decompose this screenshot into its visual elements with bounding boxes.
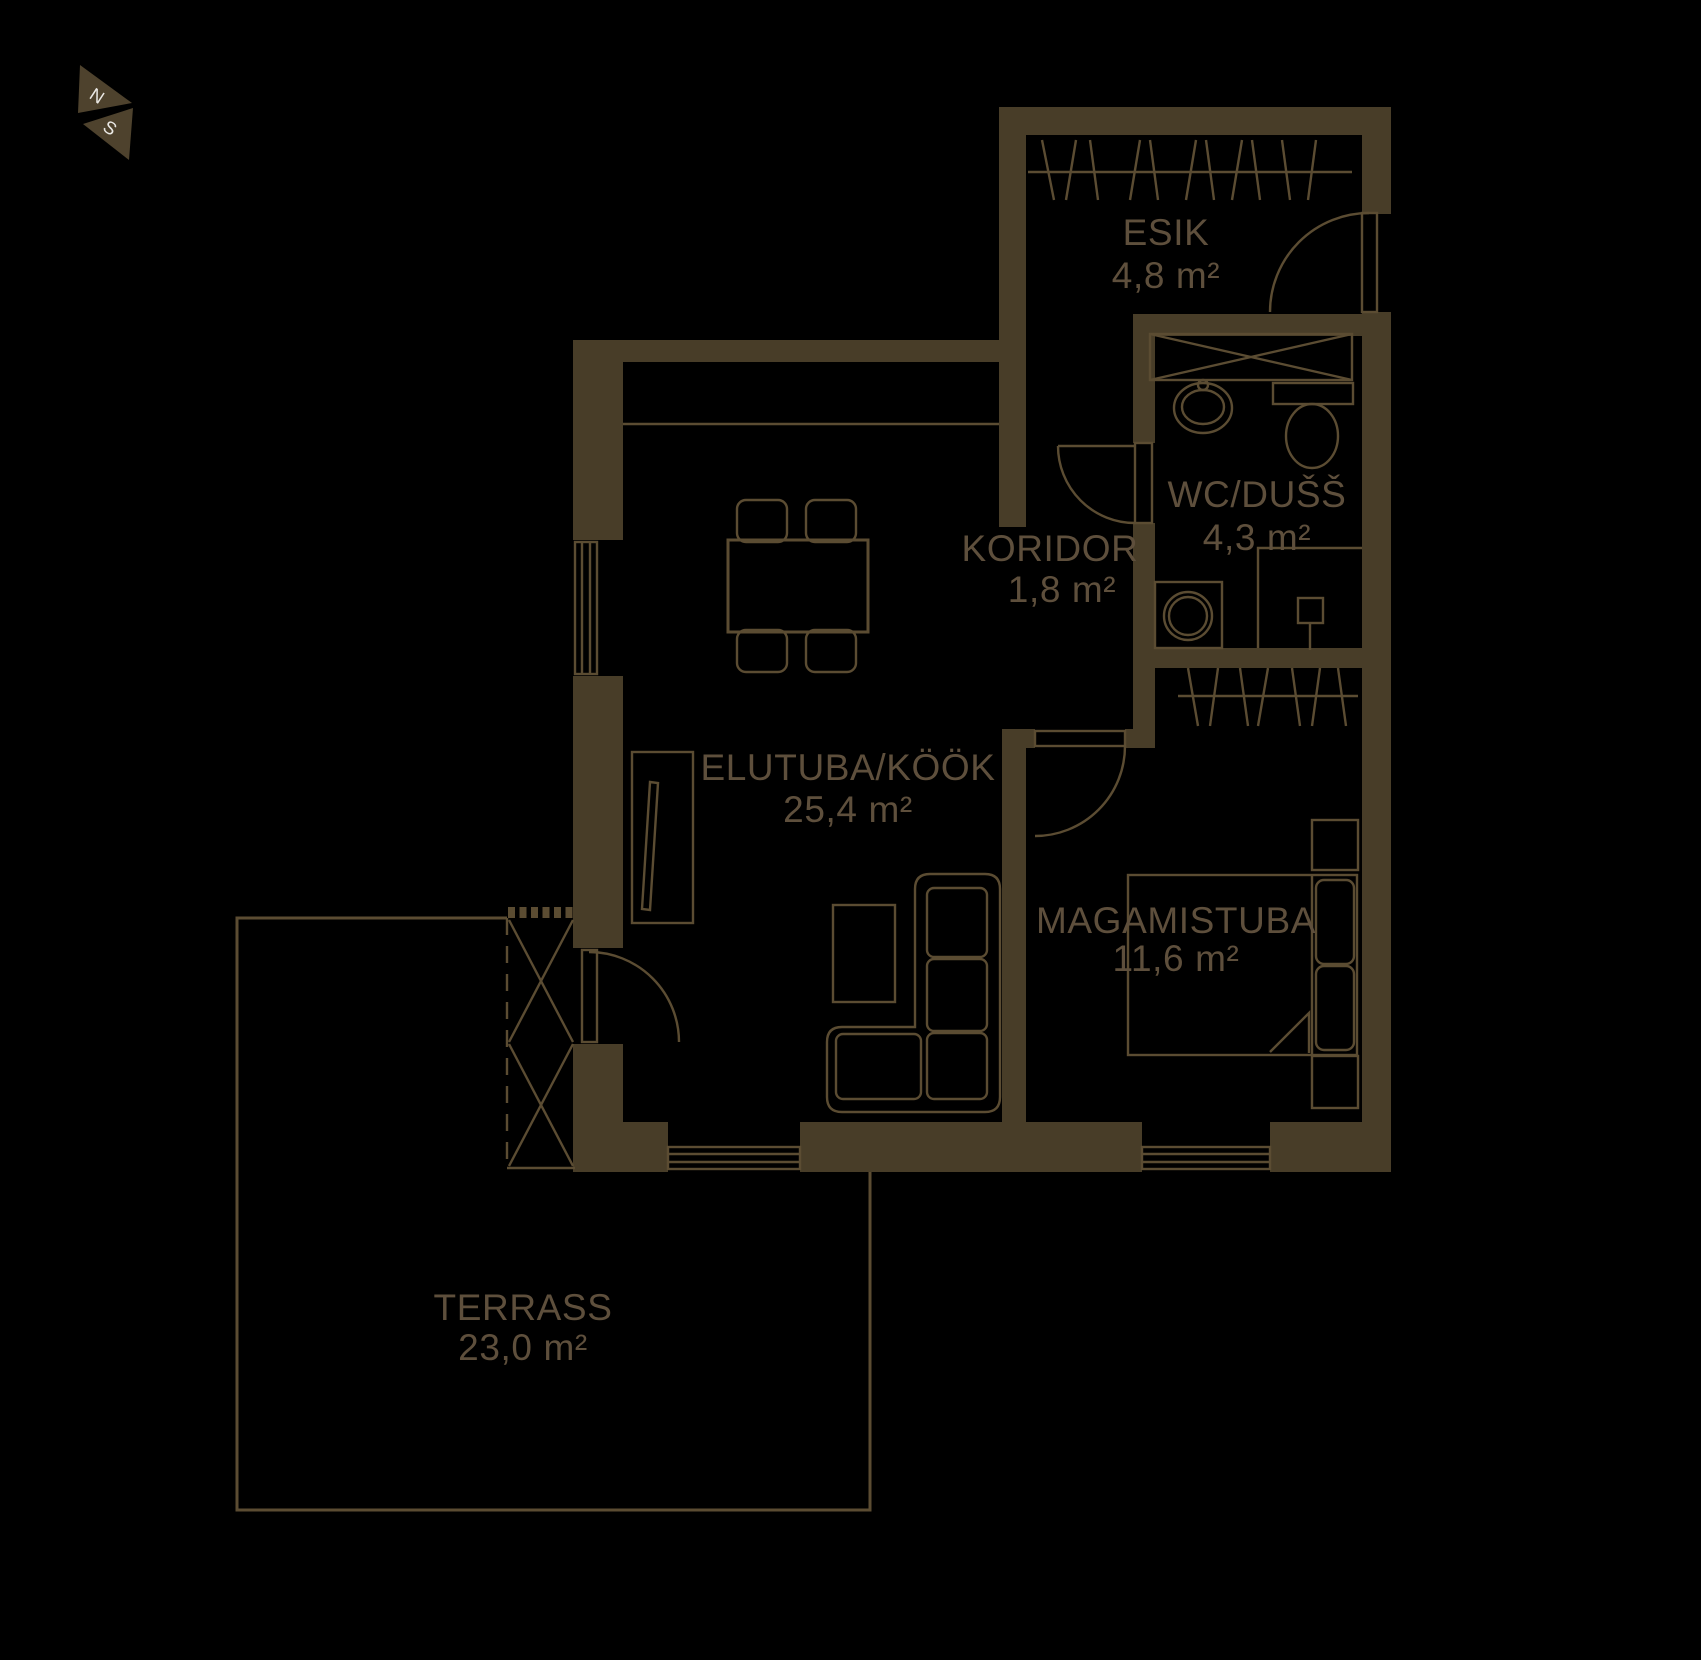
bedroom-closet-hatch (1178, 668, 1358, 726)
wc-door-swing-arc (1058, 446, 1135, 523)
tv-stand (632, 752, 693, 923)
wall-right-above-entry (1362, 107, 1391, 214)
dining-chair (806, 630, 856, 672)
ventilation-cabinet (1150, 334, 1352, 380)
entry-door-leaf (1362, 213, 1377, 312)
windows (575, 542, 1270, 1169)
shower-drain (1298, 598, 1323, 623)
pillow (1316, 880, 1354, 964)
dining-chair (806, 500, 856, 542)
room-label-magamistuba: MAGAMISTUBA (1036, 900, 1316, 941)
balcony-door-swing-arc (589, 952, 679, 1042)
tv-cabinet (632, 752, 693, 923)
wall-wc-left-upper (1133, 336, 1155, 443)
window-living-bottom (668, 1147, 800, 1169)
sofa-cushion (927, 1033, 987, 1099)
balcony-door-leaf (582, 950, 597, 1042)
sofa-cushion (836, 1034, 921, 1099)
toilet-bowl (1286, 404, 1338, 468)
blanket-fold (1270, 1013, 1309, 1053)
faucet (1198, 380, 1208, 390)
shower (1258, 548, 1362, 650)
room-area-wc-duss: 4,3 m² (1203, 517, 1311, 558)
wall-living-top (573, 340, 1026, 362)
room-area-terrass: 23,0 m² (458, 1327, 588, 1368)
wall-esik-wc-divider (1133, 314, 1363, 336)
room-label-koridor: KORIDOR (962, 528, 1139, 569)
nightstand (1312, 1056, 1358, 1108)
toilet-tank (1273, 383, 1353, 404)
dining-chair (737, 500, 787, 542)
wall-right-main (1362, 312, 1391, 1172)
corner-sofa-outline (827, 874, 1000, 1112)
dining-chair (737, 630, 787, 672)
room-area-magamistuba: 11,6 m² (1113, 938, 1240, 979)
wc-door-frame (1135, 443, 1152, 523)
compass-rose: N S (78, 65, 133, 160)
wall-bottom-center (800, 1122, 1142, 1172)
wall-bottom-right (1270, 1122, 1391, 1172)
room-label-elutuba: ELUTUBA/KÖÖK (700, 747, 995, 788)
room-labels: ESIK 4,8 m² WC/DUŠŠ 4,3 m² KORIDOR 1,8 m… (434, 212, 1347, 1368)
balcony-door (582, 950, 679, 1042)
window-living-left (575, 542, 597, 674)
dining-set (728, 500, 868, 672)
wall-esik-top (999, 107, 1391, 135)
wall-bedroom-door-right-jamb (1125, 729, 1155, 748)
wall-bottom-left (573, 1122, 668, 1172)
coffee-table (833, 905, 895, 1002)
room-label-wc-duss: WC/DUŠŠ (1168, 474, 1347, 515)
entry-door (1270, 213, 1377, 312)
sofa-group (827, 874, 1000, 1112)
wall-living-left-upper (573, 340, 623, 540)
bedroom-door-swing-arc (1035, 746, 1125, 836)
walls (573, 107, 1391, 1172)
sink (1174, 380, 1232, 433)
tv-screen (642, 782, 658, 910)
dining-table (728, 540, 868, 632)
entry-door-swing-arc (1270, 213, 1369, 312)
wall-bedroom-door-left-jamb (1002, 729, 1035, 748)
wall-living-bedroom-divider (1002, 729, 1026, 1122)
pergola-hatch-zone (507, 907, 575, 1168)
room-area-elutuba: 25,4 m² (783, 789, 913, 830)
toilet (1273, 383, 1353, 468)
wall-esik-koridor-left (999, 107, 1026, 527)
room-label-esik: ESIK (1123, 212, 1210, 253)
room-area-esik: 4,8 m² (1112, 255, 1220, 296)
nightstand (1312, 820, 1358, 870)
sofa-cushion (927, 888, 987, 957)
terrace (237, 907, 870, 1510)
bedroom-door (1035, 731, 1125, 836)
washing-machine (1155, 582, 1222, 648)
wall-living-left-middle (573, 676, 623, 948)
pillow (1316, 966, 1354, 1050)
wc-door (1058, 443, 1152, 523)
window-bedroom-bottom (1142, 1147, 1270, 1169)
room-label-terrass: TERRASS (434, 1287, 613, 1328)
wall-wc-bedroom-divider (1133, 648, 1362, 668)
sofa-cushion (927, 959, 987, 1031)
floor-plan-page: N S (0, 0, 1701, 1660)
bedroom-door-frame (1035, 731, 1125, 746)
room-area-koridor: 1,8 m² (1008, 569, 1116, 610)
esik-closet-hatch (1028, 140, 1352, 200)
floor-plan-drawing: N S (0, 0, 1701, 1660)
